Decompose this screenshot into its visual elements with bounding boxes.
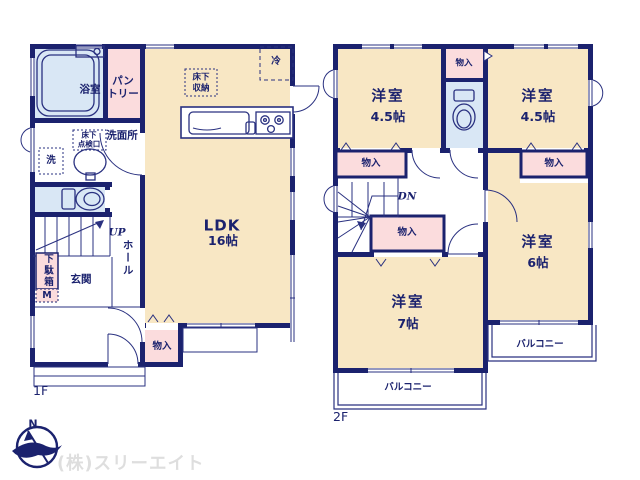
floor-label-2f: 2F [333, 409, 348, 425]
floor-label-1f: 1F [33, 383, 48, 399]
room-label-pantry: パン トリー [107, 75, 139, 101]
room-size-ne: 4.5帖 [521, 109, 556, 125]
room-label-bath: 浴室 [80, 83, 101, 96]
room-label-se: 洋室 [522, 234, 555, 252]
label-fridge: 冷 [271, 56, 281, 68]
label-closet-center: 物入 [397, 227, 416, 239]
company-name: (株)スリーエイト [57, 450, 205, 475]
floorplan-page: 浴室 パン トリー 冷 床下 収納 洗面所 床下 点検口 洗 UP ホール 下駄… [0, 0, 640, 480]
label-washer: 洗 [46, 155, 56, 167]
label-stairs-up: UP [108, 226, 125, 239]
room-label-washroom: 洗面所 [106, 129, 138, 142]
label-balcony-east: バルコニー [516, 339, 563, 351]
room-size-sw: 7帖 [397, 316, 418, 332]
room-size-se: 6帖 [527, 255, 548, 271]
label-closet-top: 物入 [455, 59, 472, 70]
label-underfloor-hatch: 床下 点検口 [78, 131, 101, 150]
room-label-hall: ホール [120, 239, 133, 277]
label-underfloor-storage: 床下 収納 [192, 72, 209, 93]
room-size-ldk: 16帖 [208, 233, 238, 249]
label-stairs-down: DN [398, 190, 417, 203]
room-label-nw: 洋室 [372, 88, 405, 106]
room-label-ne: 洋室 [522, 88, 555, 106]
room-size-nw: 4.5帖 [371, 109, 406, 125]
label-shoe-cabinet-m: M [42, 290, 51, 302]
label-closet-east: 物入 [544, 158, 563, 170]
compass-north-label: N [28, 418, 37, 431]
label-balcony-south: バルコニー [384, 382, 431, 394]
label-shoe-cabinet: 下駄箱 [41, 254, 53, 289]
label-closet-west: 物入 [361, 158, 380, 170]
label-closet-1f: 物入 [152, 341, 171, 353]
compass-icon [12, 427, 62, 467]
room-label-sw: 洋室 [392, 294, 425, 312]
room-label-entrance: 玄関 [71, 273, 92, 286]
